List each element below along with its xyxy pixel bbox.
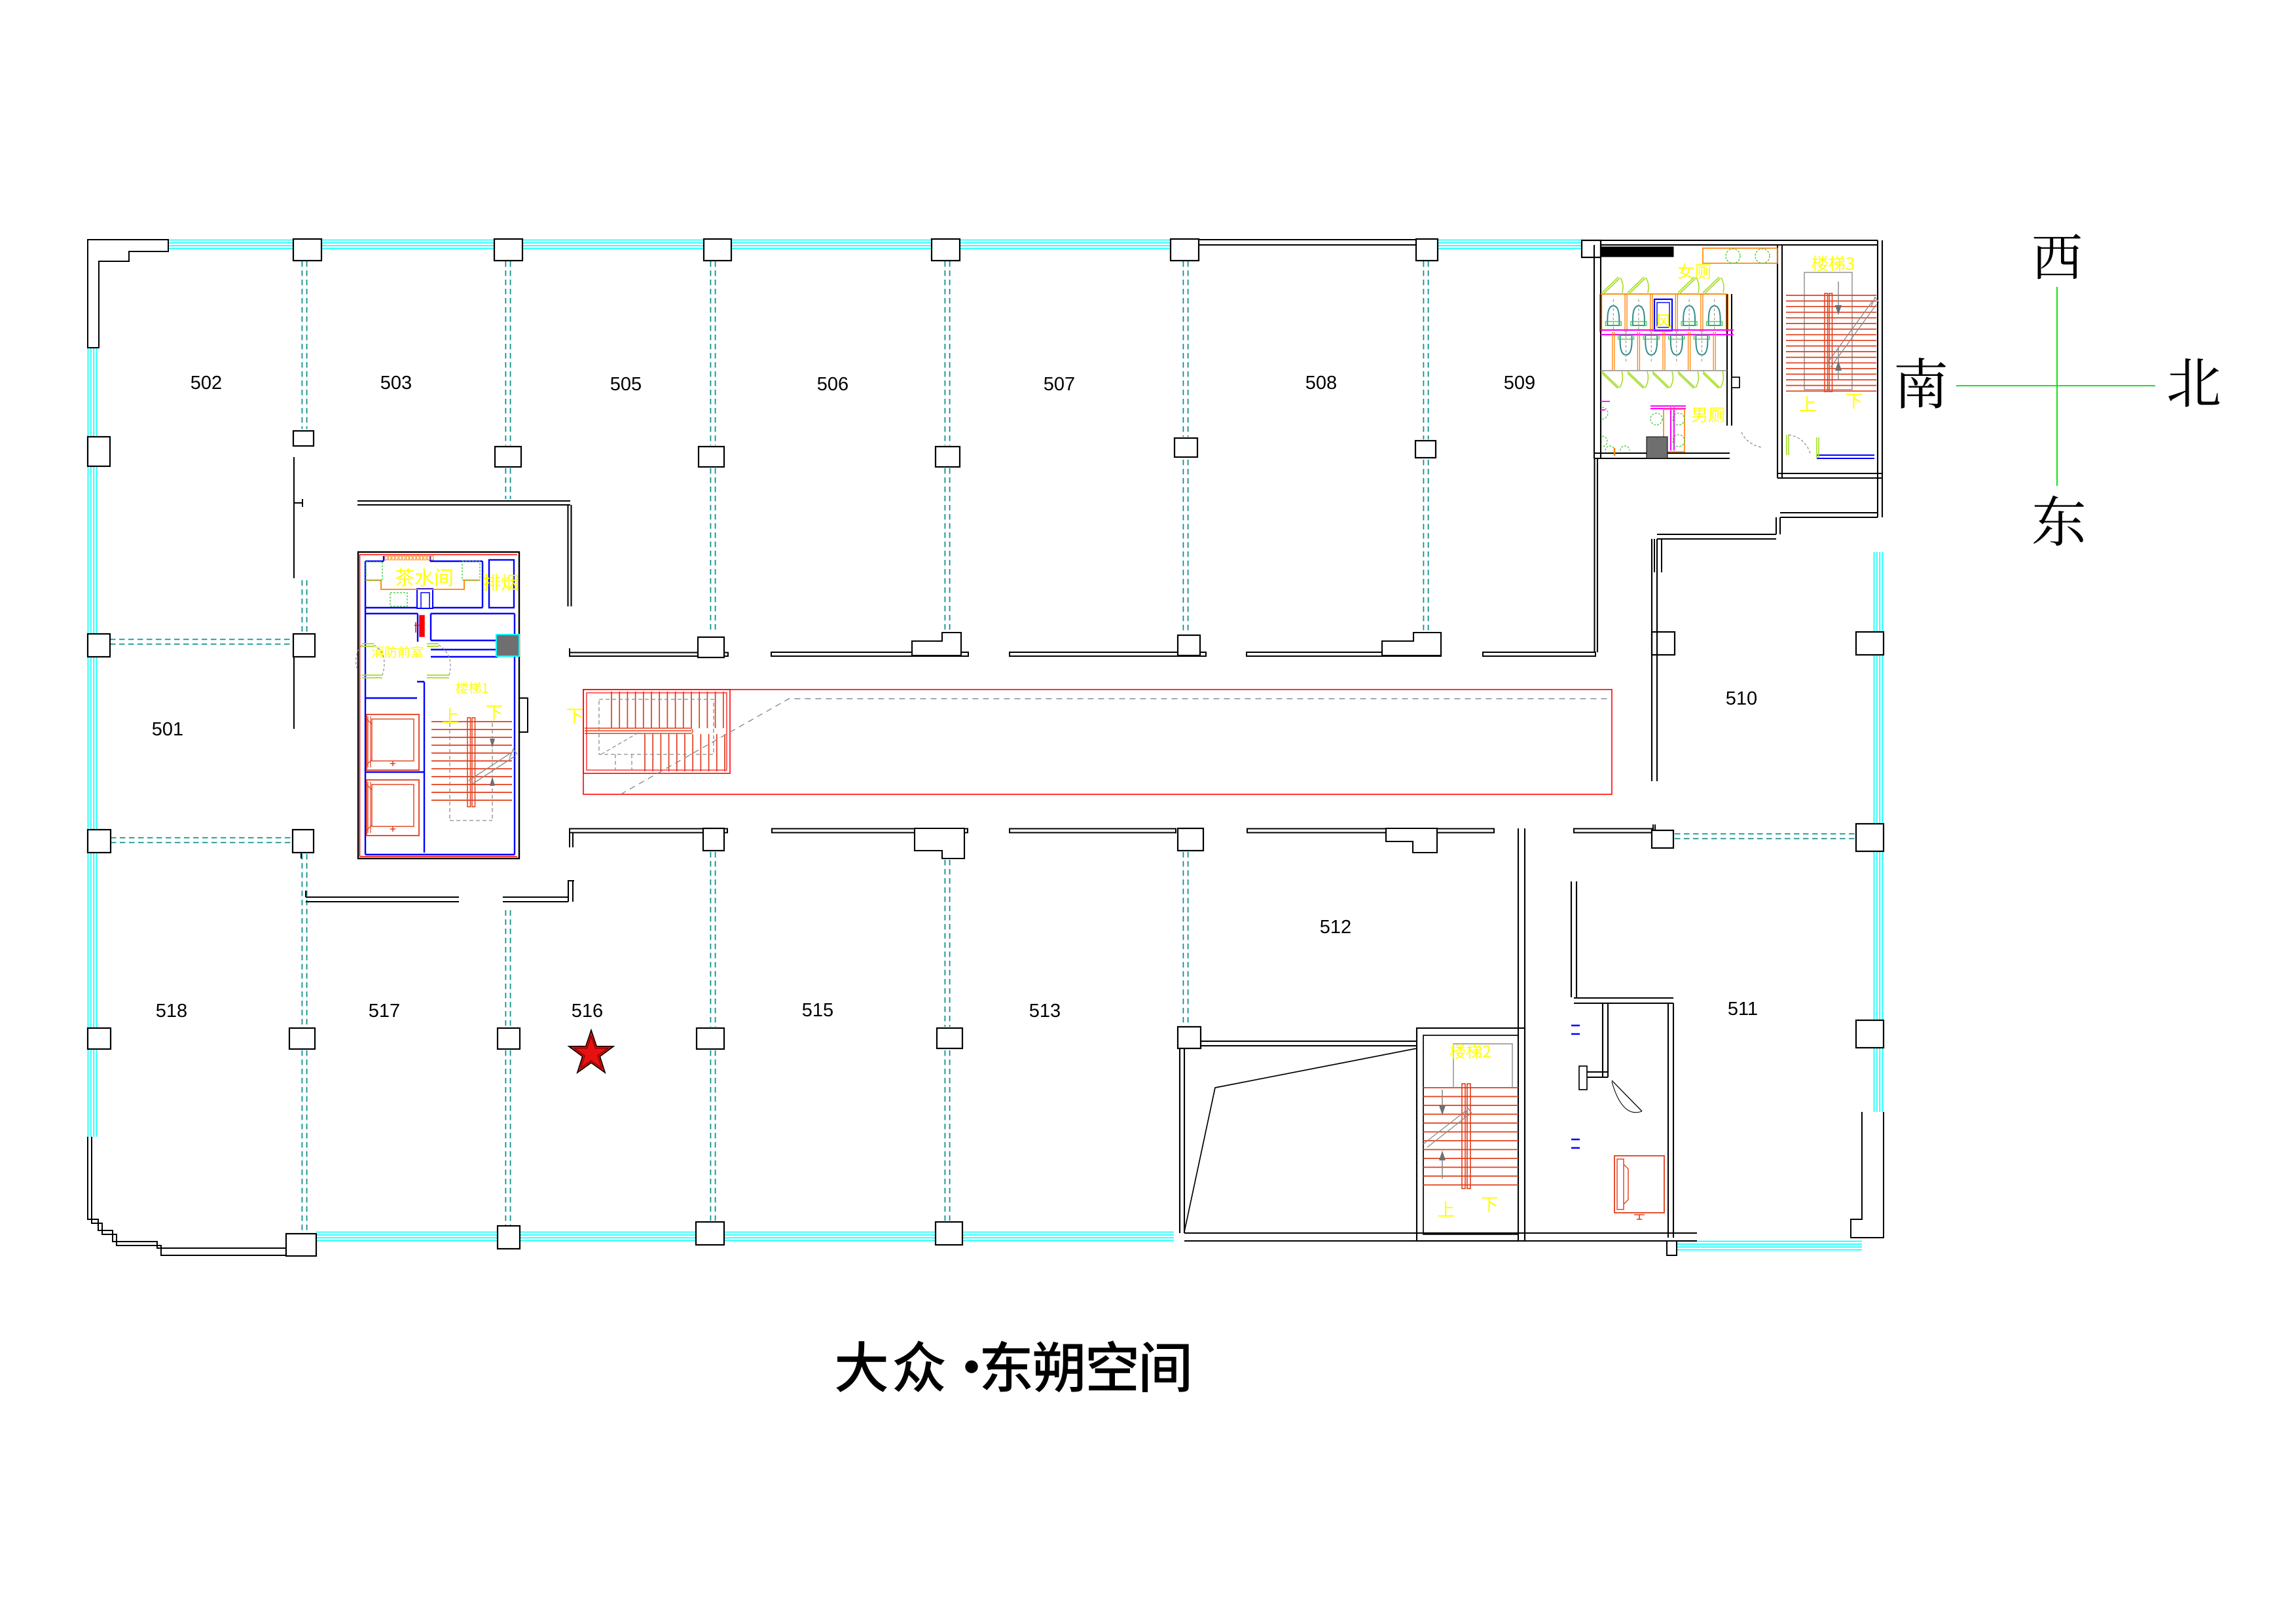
svg-text:515: 515 [802, 1000, 833, 1021]
svg-text:518: 518 [156, 1001, 187, 1022]
svg-text:513: 513 [1029, 1001, 1061, 1022]
svg-text:510: 510 [1726, 688, 1757, 709]
svg-text:508: 508 [1305, 373, 1337, 394]
svg-text:502: 502 [191, 373, 222, 394]
svg-text:506: 506 [817, 374, 848, 395]
svg-text:516: 516 [572, 1001, 603, 1022]
svg-text:507: 507 [1044, 374, 1075, 395]
svg-text:509: 509 [1504, 373, 1535, 394]
svg-text:517: 517 [369, 1001, 400, 1022]
svg-text:503: 503 [380, 373, 412, 394]
svg-text:511: 511 [1728, 999, 1758, 1020]
svg-text:512: 512 [1320, 917, 1351, 938]
svg-text:505: 505 [610, 374, 642, 395]
svg-text:501: 501 [152, 719, 183, 740]
